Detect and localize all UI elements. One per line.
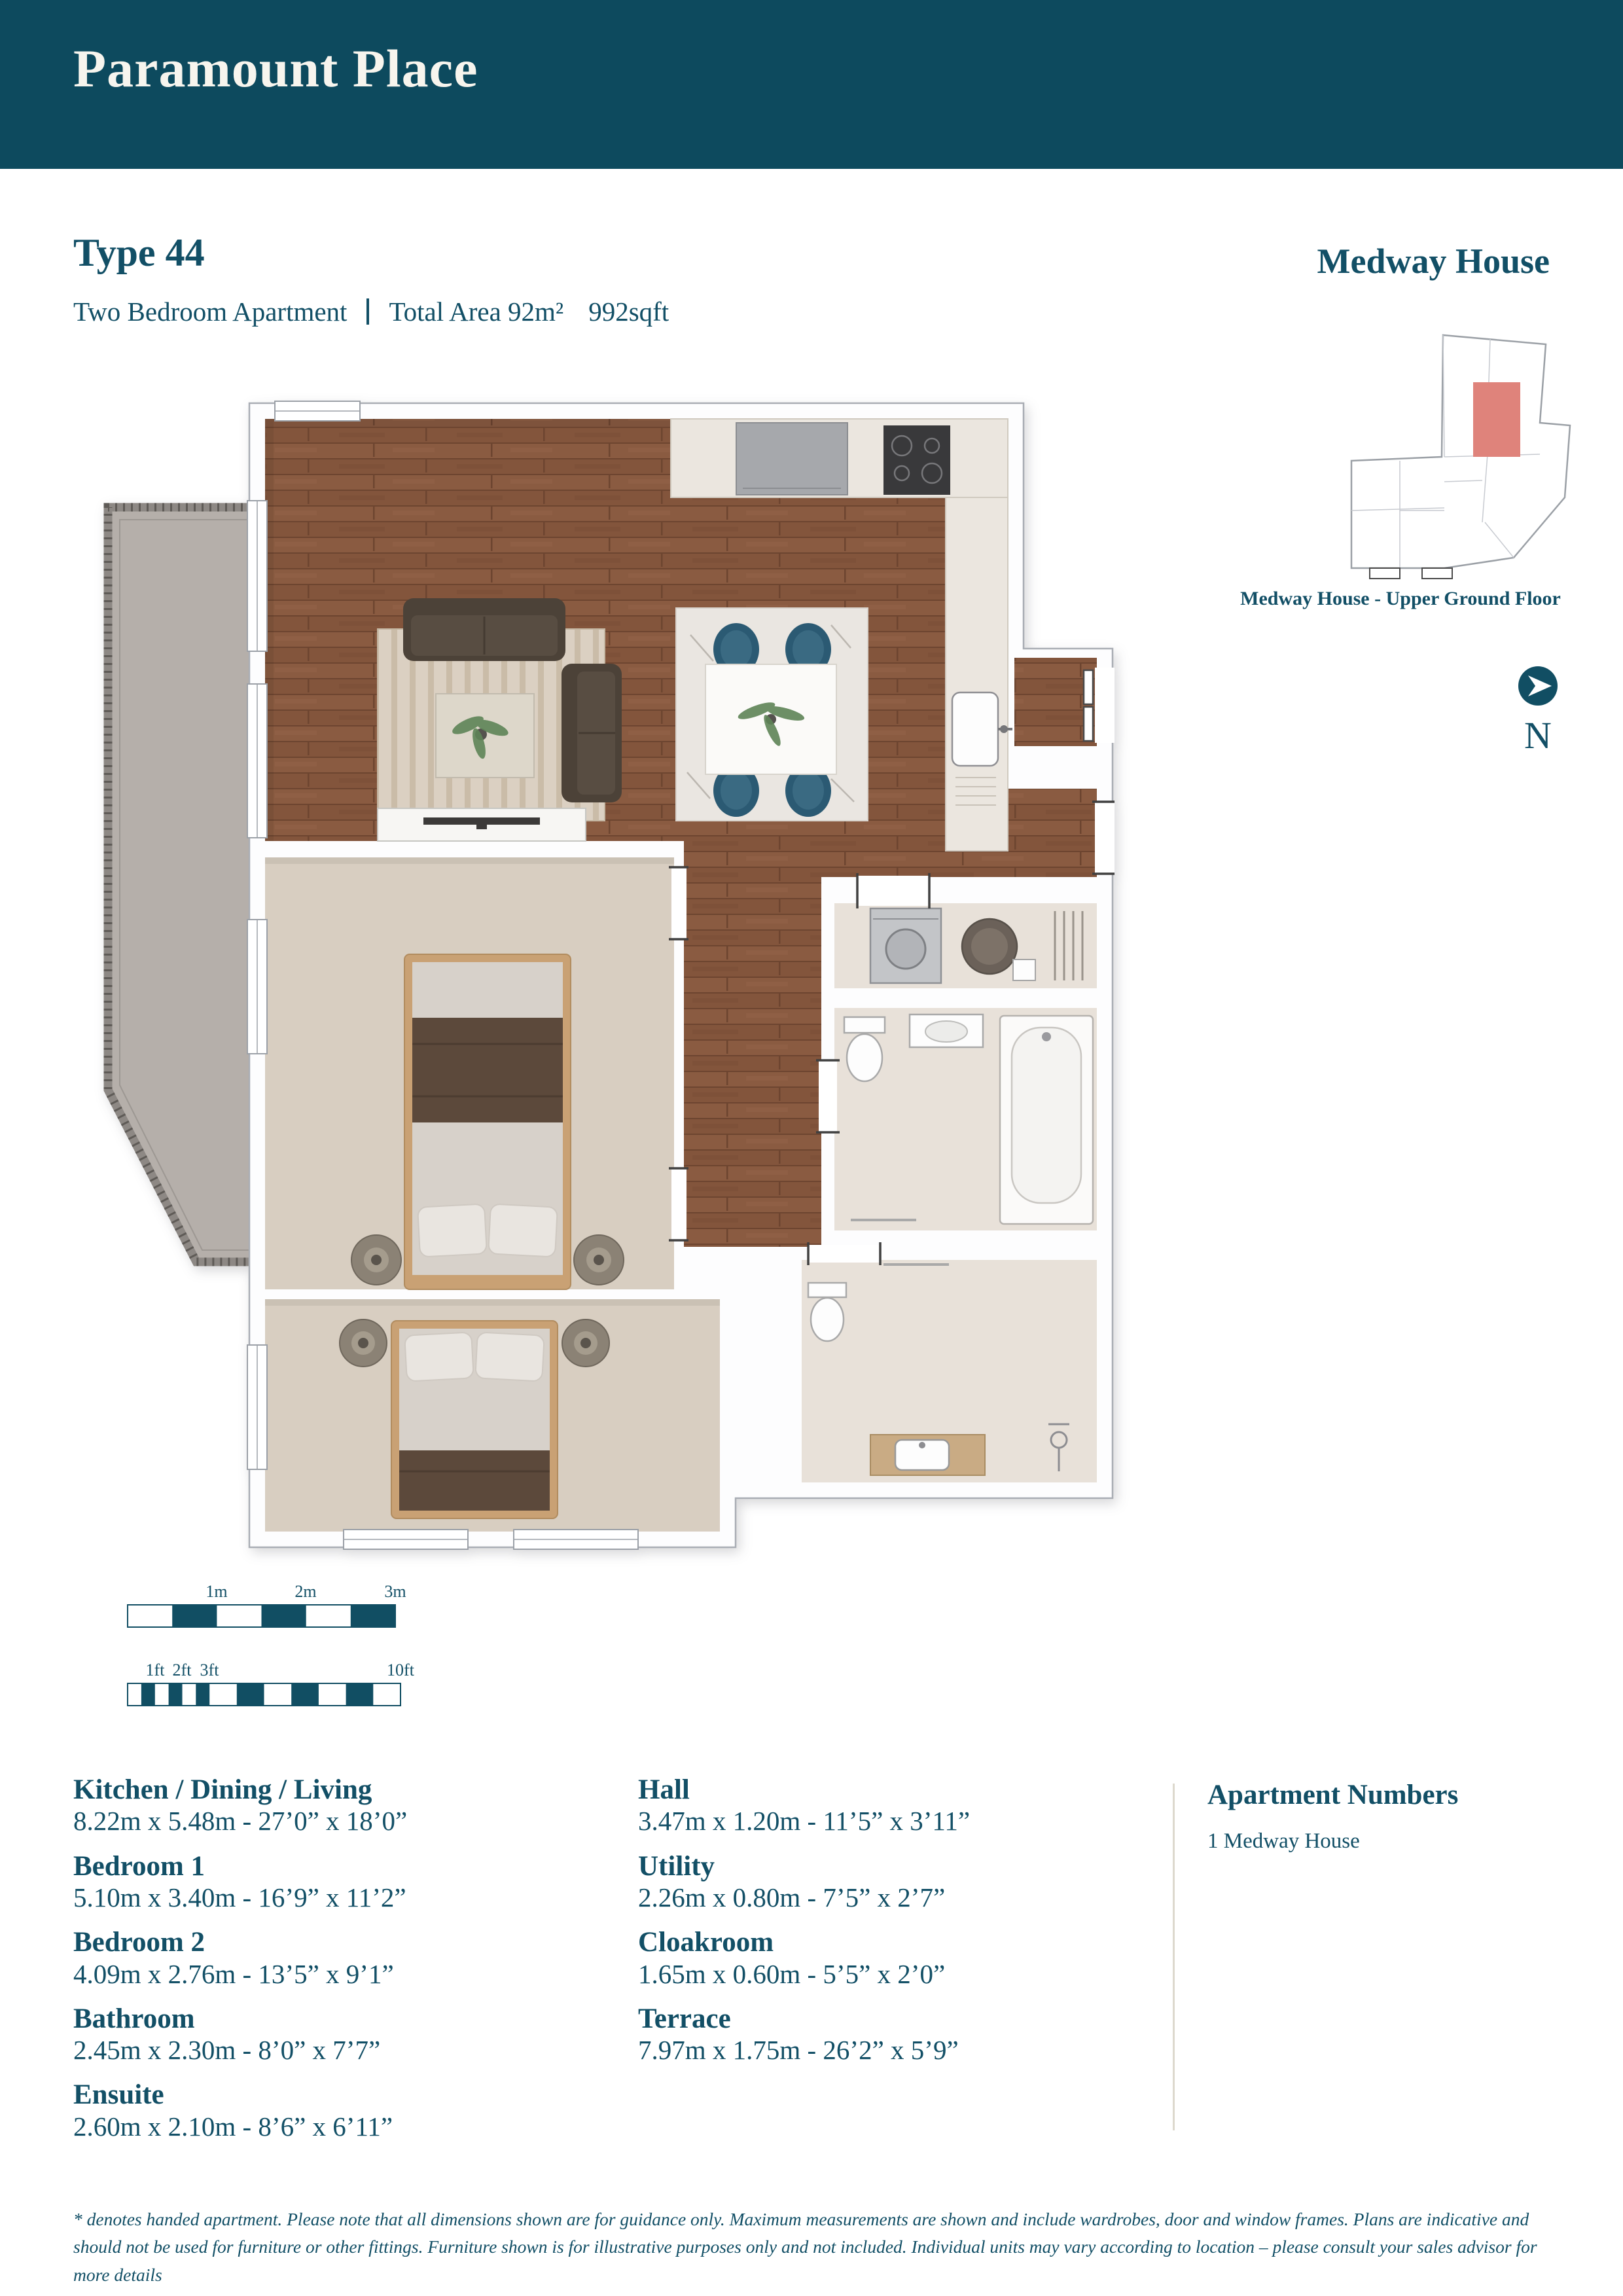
room-dims: 8.22m x 5.48m - 27’0” x 18’0” [73, 1806, 597, 1836]
unit-total-area: Total Area 92m² [389, 296, 563, 327]
metric-scale-bar: 1m 2m 3m [128, 1582, 406, 1627]
building-title: Medway House [903, 241, 1550, 281]
imperial-label-3ft: 3ft [200, 1660, 220, 1679]
tv-console [378, 808, 586, 841]
bathroom-toilet [844, 1017, 885, 1081]
metric-label-2m: 2m [294, 1582, 316, 1601]
apartment-numbers: Apartment Numbers 1 Medway House [1207, 1779, 1574, 1854]
room-entry: Hall3.47m x 1.20m - 11’5” x 3’11” [638, 1775, 1162, 1837]
room-name: Bathroom [73, 2004, 597, 2034]
bed2-throw [399, 1450, 550, 1511]
sofa-top [403, 598, 565, 661]
locator-balconies [1370, 568, 1452, 579]
room-dimensions-left: Kitchen / Dining / Living8.22m x 5.48m -… [73, 1775, 597, 2157]
room-dims: 3.47m x 1.20m - 11’5” x 3’11” [638, 1806, 1162, 1836]
room-dims: 4.09m x 2.76m - 13’5” x 9’1” [73, 1960, 597, 1989]
locator-building-outline [1351, 335, 1570, 568]
washing-machine [870, 908, 941, 983]
unit-type-title: Type 44 [73, 230, 205, 276]
room-dims: 2.26m x 0.80m - 7’5” x 2’7” [638, 1883, 1162, 1912]
imperial-label-10ft: 10ft [387, 1660, 415, 1679]
room-name: Utility [638, 1852, 1162, 1882]
room-entry: Bathroom2.45m x 2.30m - 8’0” x 7’7” [73, 2004, 597, 2066]
hob [883, 425, 950, 495]
locator-highlight-unit [1473, 382, 1520, 457]
imperial-scale-bar: 1ft 2ft 3ft 10ft [128, 1660, 415, 1706]
ensuite-toilet [808, 1283, 846, 1341]
imperial-label-2ft: 2ft [173, 1660, 192, 1679]
unit-description: Two Bedroom Apartment [73, 296, 347, 327]
unit-subtitle: Two Bedroom Apartment Total Area 92m² 99… [73, 296, 669, 327]
dining-area [676, 608, 868, 821]
coffee-table [436, 694, 534, 778]
room-entry: Bedroom 24.09m x 2.76m - 13’5” x 9’1” [73, 1928, 597, 1989]
scale-bars: 1m 2m 3m 1ft 2ft 3ft 10ft [118, 1571, 425, 1721]
room-name: Hall [638, 1775, 1162, 1805]
apartment-numbers-item: 1 Medway House [1207, 1829, 1574, 1854]
bed1-throw [412, 1018, 563, 1122]
ensuite-vanity [870, 1435, 985, 1475]
sofa-right [562, 664, 622, 802]
north-arrow-icon [1505, 664, 1571, 710]
room-name: Bedroom 1 [73, 1852, 597, 1882]
apartment-numbers-heading: Apartment Numbers [1207, 1779, 1574, 1811]
room-dims: 5.10m x 3.40m - 16’9” x 11’2” [73, 1883, 597, 1912]
brochure-page: Paramount Place Type 44 Two Bedroom Apar… [0, 0, 1623, 2296]
room-name: Ensuite [73, 2080, 597, 2110]
room-dims: 7.97m x 1.75m - 26’2” x 5’9” [638, 2036, 1162, 2065]
fridge [736, 423, 847, 495]
room-entry: Kitchen / Dining / Living8.22m x 5.48m -… [73, 1775, 597, 1837]
bathroom-basin [910, 1014, 983, 1047]
room-name: Terrace [638, 2004, 1162, 2034]
room-name: Cloakroom [638, 1928, 1162, 1958]
locator-caption: Medway House - Upper Ground Floor [1217, 588, 1584, 610]
room-entry: Ensuite2.60m x 2.10m - 8’6” x 6’11” [73, 2080, 597, 2142]
room-dims: 1.65m x 0.60m - 5’5” x 2’0” [638, 1960, 1162, 1989]
room-dims: 2.60m x 2.10m - 8’6” x 6’11” [73, 2112, 597, 2142]
room-dimensions-middle: Hall3.47m x 1.20m - 11’5” x 3’11” Utilit… [638, 1775, 1162, 2080]
subtitle-divider [366, 298, 369, 325]
room-entry: Terrace7.97m x 1.75m - 26’2” x 5’9” [638, 2004, 1162, 2066]
kitchen-counter-right [946, 497, 1008, 851]
room-entry: Utility2.26m x 0.80m - 7’5” x 2’7” [638, 1852, 1162, 1913]
room-entry: Cloakroom1.65m x 0.60m - 5’5” x 2’0” [638, 1928, 1162, 1989]
room-entry: Bedroom 15.10m x 3.40m - 16’9” x 11’2” [73, 1852, 597, 1913]
room-name: Kitchen / Dining / Living [73, 1775, 597, 1805]
metric-label-1m: 1m [205, 1582, 227, 1601]
north-label: N [1505, 713, 1571, 757]
unit-area-sqft: 992sqft [588, 296, 669, 327]
locator-plan [1345, 326, 1580, 583]
column-divider [1173, 1784, 1175, 2130]
bathtub [1000, 1016, 1093, 1224]
room-name: Bedroom 2 [73, 1928, 597, 1958]
disclaimer-text: * denotes handed apartment. Please note … [73, 2206, 1558, 2289]
page-title: Paramount Place [73, 38, 478, 99]
imperial-label-1ft: 1ft [146, 1660, 166, 1679]
metric-label-3m: 3m [384, 1582, 406, 1601]
floor-plan [98, 380, 1178, 1551]
dining-table [705, 664, 836, 774]
terrace [108, 507, 259, 1262]
hall-corridor-floor [684, 841, 821, 1247]
living-area [378, 598, 622, 841]
room-dims: 2.45m x 2.30m - 8’0” x 7’7” [73, 2036, 597, 2065]
